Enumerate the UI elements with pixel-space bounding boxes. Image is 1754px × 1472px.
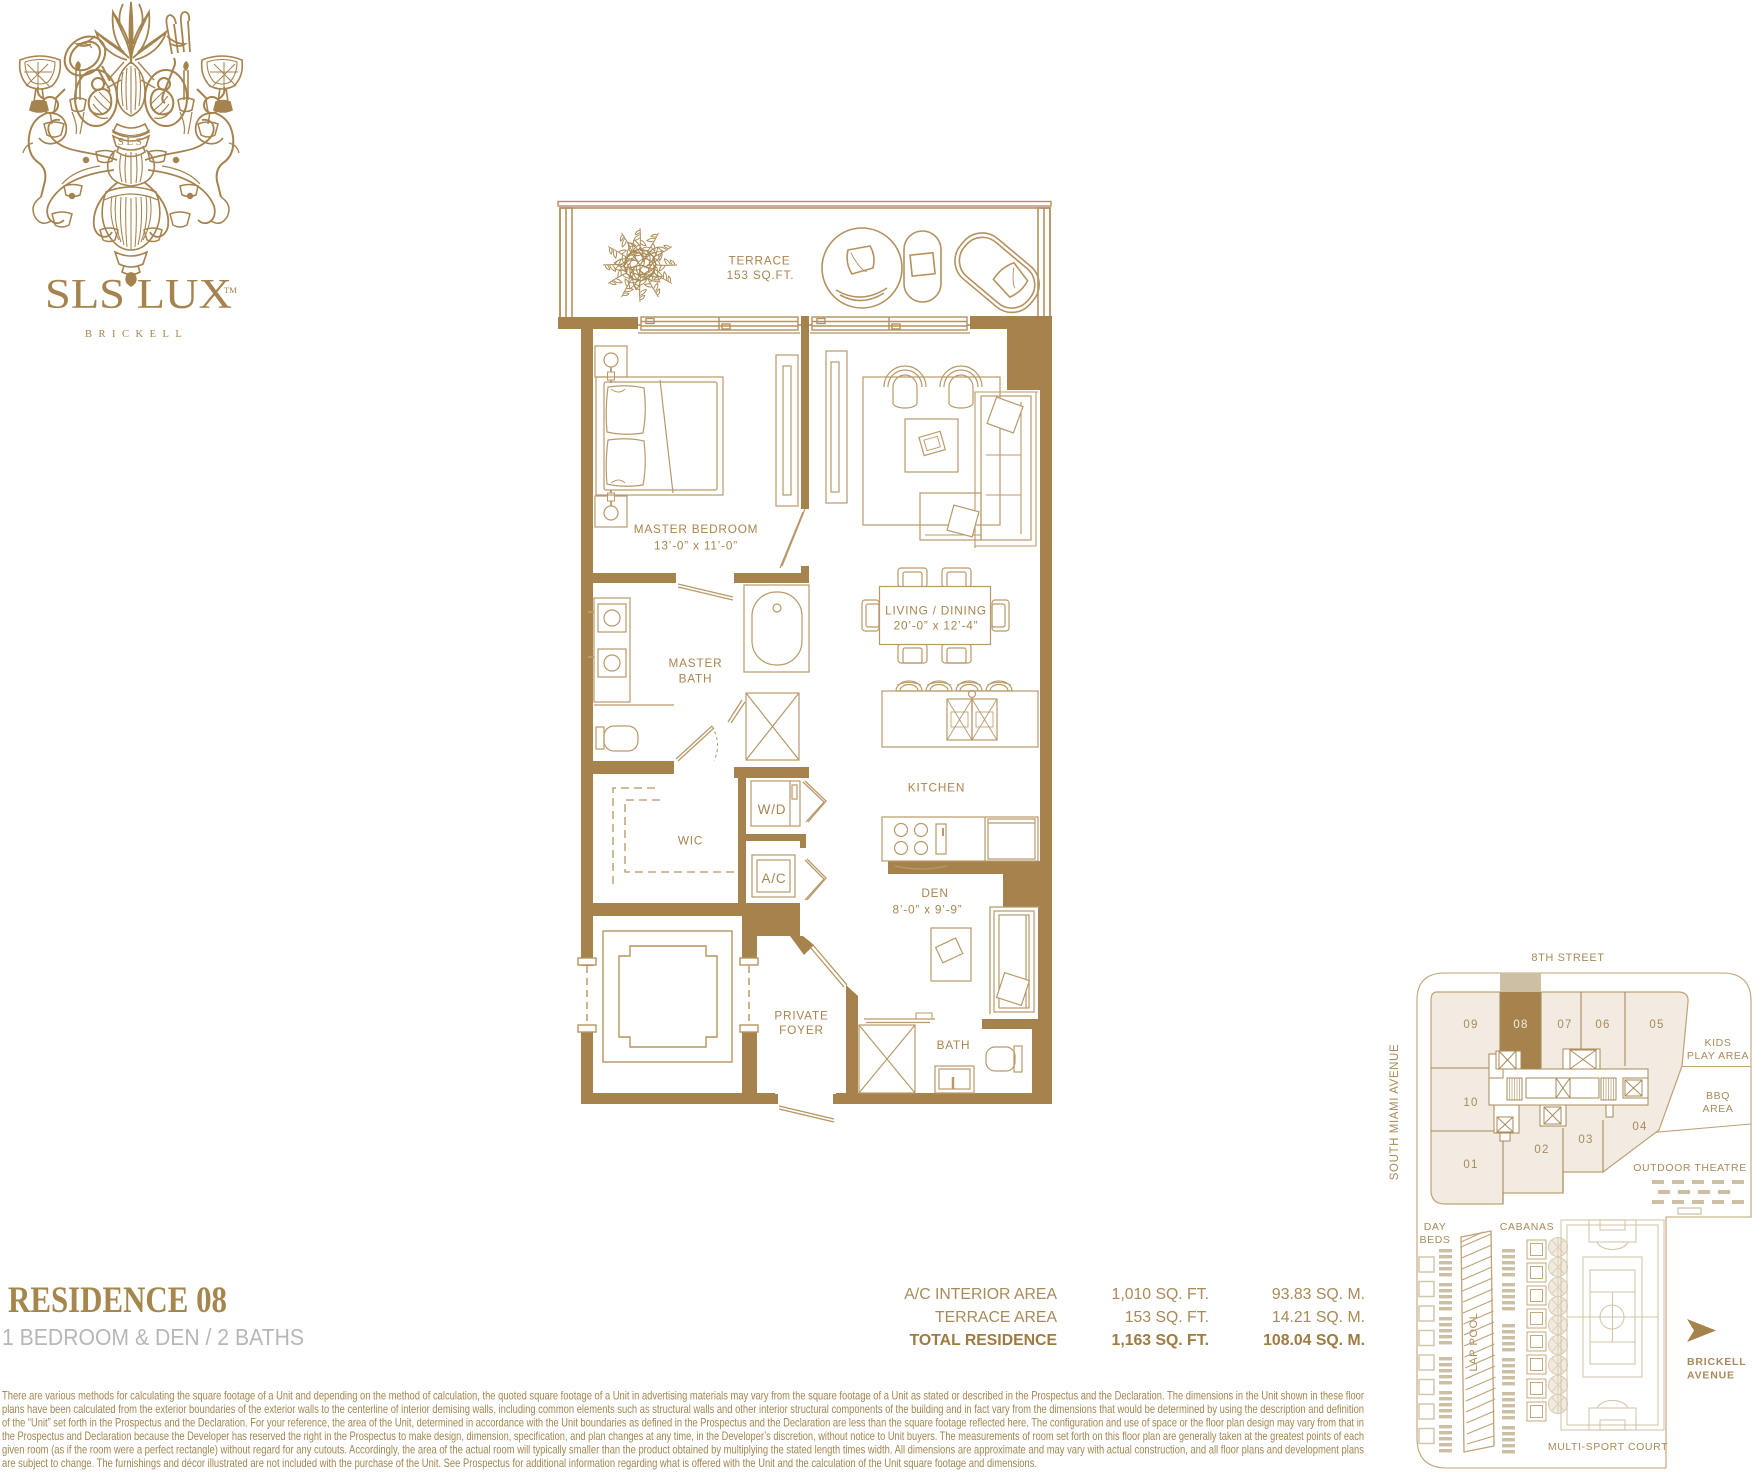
svg-text:93.83 SQ. M.: 93.83 SQ. M. xyxy=(1272,1286,1365,1303)
svg-text:CABANAS: CABANAS xyxy=(1500,1221,1554,1233)
svg-text:FOYER: FOYER xyxy=(779,1023,824,1037)
svg-text:PRIVATE: PRIVATE xyxy=(774,1009,828,1023)
svg-text:07: 07 xyxy=(1557,1019,1572,1031)
svg-text:108.04 SQ. M.: 108.04 SQ. M. xyxy=(1263,1332,1365,1349)
svg-text:given room (as if the room wer: given room (as if the room were a perfec… xyxy=(2,1443,1364,1457)
svg-text:There are various methods for: There are various methods for calculatin… xyxy=(2,1389,1364,1403)
svg-text:MASTER: MASTER xyxy=(669,656,723,670)
svg-text:BRICKELL: BRICKELL xyxy=(1687,1356,1746,1368)
svg-text:A/C: A/C xyxy=(762,871,787,886)
svg-text:04: 04 xyxy=(1632,1121,1647,1133)
svg-text:MASTER BEDROOM: MASTER BEDROOM xyxy=(634,522,759,536)
svg-text:TERRACE AREA: TERRACE AREA xyxy=(935,1309,1057,1326)
svg-text:153 SQ.FT.: 153 SQ.FT. xyxy=(727,268,795,282)
svg-text:8’-0” x 9’-9”: 8’-0” x 9’-9” xyxy=(892,903,962,917)
svg-text:KITCHEN: KITCHEN xyxy=(908,781,965,795)
svg-text:TERRACE: TERRACE xyxy=(729,254,791,268)
svg-text:20’-0” x 12’-4”: 20’-0” x 12’-4” xyxy=(894,619,979,633)
svg-text:are subject to change. The fu: are subject to change. The furnishings a… xyxy=(2,1456,1037,1470)
svg-text:153 SQ. FT.: 153 SQ. FT. xyxy=(1125,1309,1209,1326)
svg-text:BEDS: BEDS xyxy=(1420,1234,1451,1246)
svg-text:01: 01 xyxy=(1463,1159,1478,1171)
svg-text:08: 08 xyxy=(1513,1019,1528,1031)
svg-text:BBQ: BBQ xyxy=(1706,1090,1730,1102)
svg-text:1,010 SQ. FT.: 1,010 SQ. FT. xyxy=(1112,1286,1209,1303)
svg-text:BATH: BATH xyxy=(679,672,713,686)
svg-text:of the “Unit” set forth in the: of the “Unit” set forth in the Prospectu… xyxy=(2,1416,1364,1430)
svg-text:AREA: AREA xyxy=(1703,1103,1734,1115)
svg-text:BATH: BATH xyxy=(937,1038,971,1052)
svg-text:13’-0” x 11’-0”: 13’-0” x 11’-0” xyxy=(654,539,738,553)
svg-text:MULTI-SPORT COURT: MULTI-SPORT COURT xyxy=(1548,1441,1668,1453)
svg-text:03: 03 xyxy=(1578,1134,1593,1146)
svg-text:SLS LUX: SLS LUX xyxy=(45,272,232,318)
svg-text:05: 05 xyxy=(1649,1019,1664,1031)
svg-text:02: 02 xyxy=(1534,1144,1549,1156)
svg-text:KIDS: KIDS xyxy=(1705,1037,1732,1049)
svg-text:LIVING / DINING: LIVING / DINING xyxy=(885,604,987,618)
svg-text:TM: TM xyxy=(224,285,237,295)
svg-text:1,163 SQ. FT.: 1,163 SQ. FT. xyxy=(1112,1332,1209,1349)
svg-text:06: 06 xyxy=(1595,1019,1610,1031)
svg-text:RESIDENCE 08: RESIDENCE 08 xyxy=(8,1280,227,1321)
svg-text:10: 10 xyxy=(1463,1097,1478,1109)
svg-text:SOUTH MIAMI AVENUE: SOUTH MIAMI AVENUE xyxy=(1389,1044,1401,1180)
svg-text:SLS: SLS xyxy=(118,136,144,148)
svg-text:A/C INTERIOR AREA: A/C INTERIOR AREA xyxy=(904,1286,1057,1303)
svg-text:09: 09 xyxy=(1463,1019,1478,1031)
svg-text:plans have been calculated fro: plans have been calculated from the exte… xyxy=(2,1402,1364,1416)
svg-text:WIC: WIC xyxy=(678,834,703,848)
svg-text:DEN: DEN xyxy=(921,886,948,900)
svg-text:AVENUE: AVENUE xyxy=(1687,1370,1735,1382)
svg-text:W/D: W/D xyxy=(758,802,787,817)
svg-text:DAY: DAY xyxy=(1424,1221,1447,1233)
svg-text:PLAY AREA: PLAY AREA xyxy=(1687,1050,1749,1062)
svg-text:BRICKELL: BRICKELL xyxy=(85,329,188,340)
svg-text:14.21 SQ. M.: 14.21 SQ. M. xyxy=(1272,1309,1365,1326)
svg-text:1 BEDROOM & DEN / 2 BATHS: 1 BEDROOM & DEN / 2 BATHS xyxy=(2,1324,304,1350)
svg-text:TOTAL RESIDENCE: TOTAL RESIDENCE xyxy=(910,1332,1057,1349)
svg-text:the Prospectus and Declaration: the Prospectus and Declaration because t… xyxy=(2,1429,1364,1443)
svg-text:8TH STREET: 8TH STREET xyxy=(1531,952,1604,964)
svg-text:OUTDOOR THEATRE: OUTDOOR THEATRE xyxy=(1633,1162,1747,1174)
